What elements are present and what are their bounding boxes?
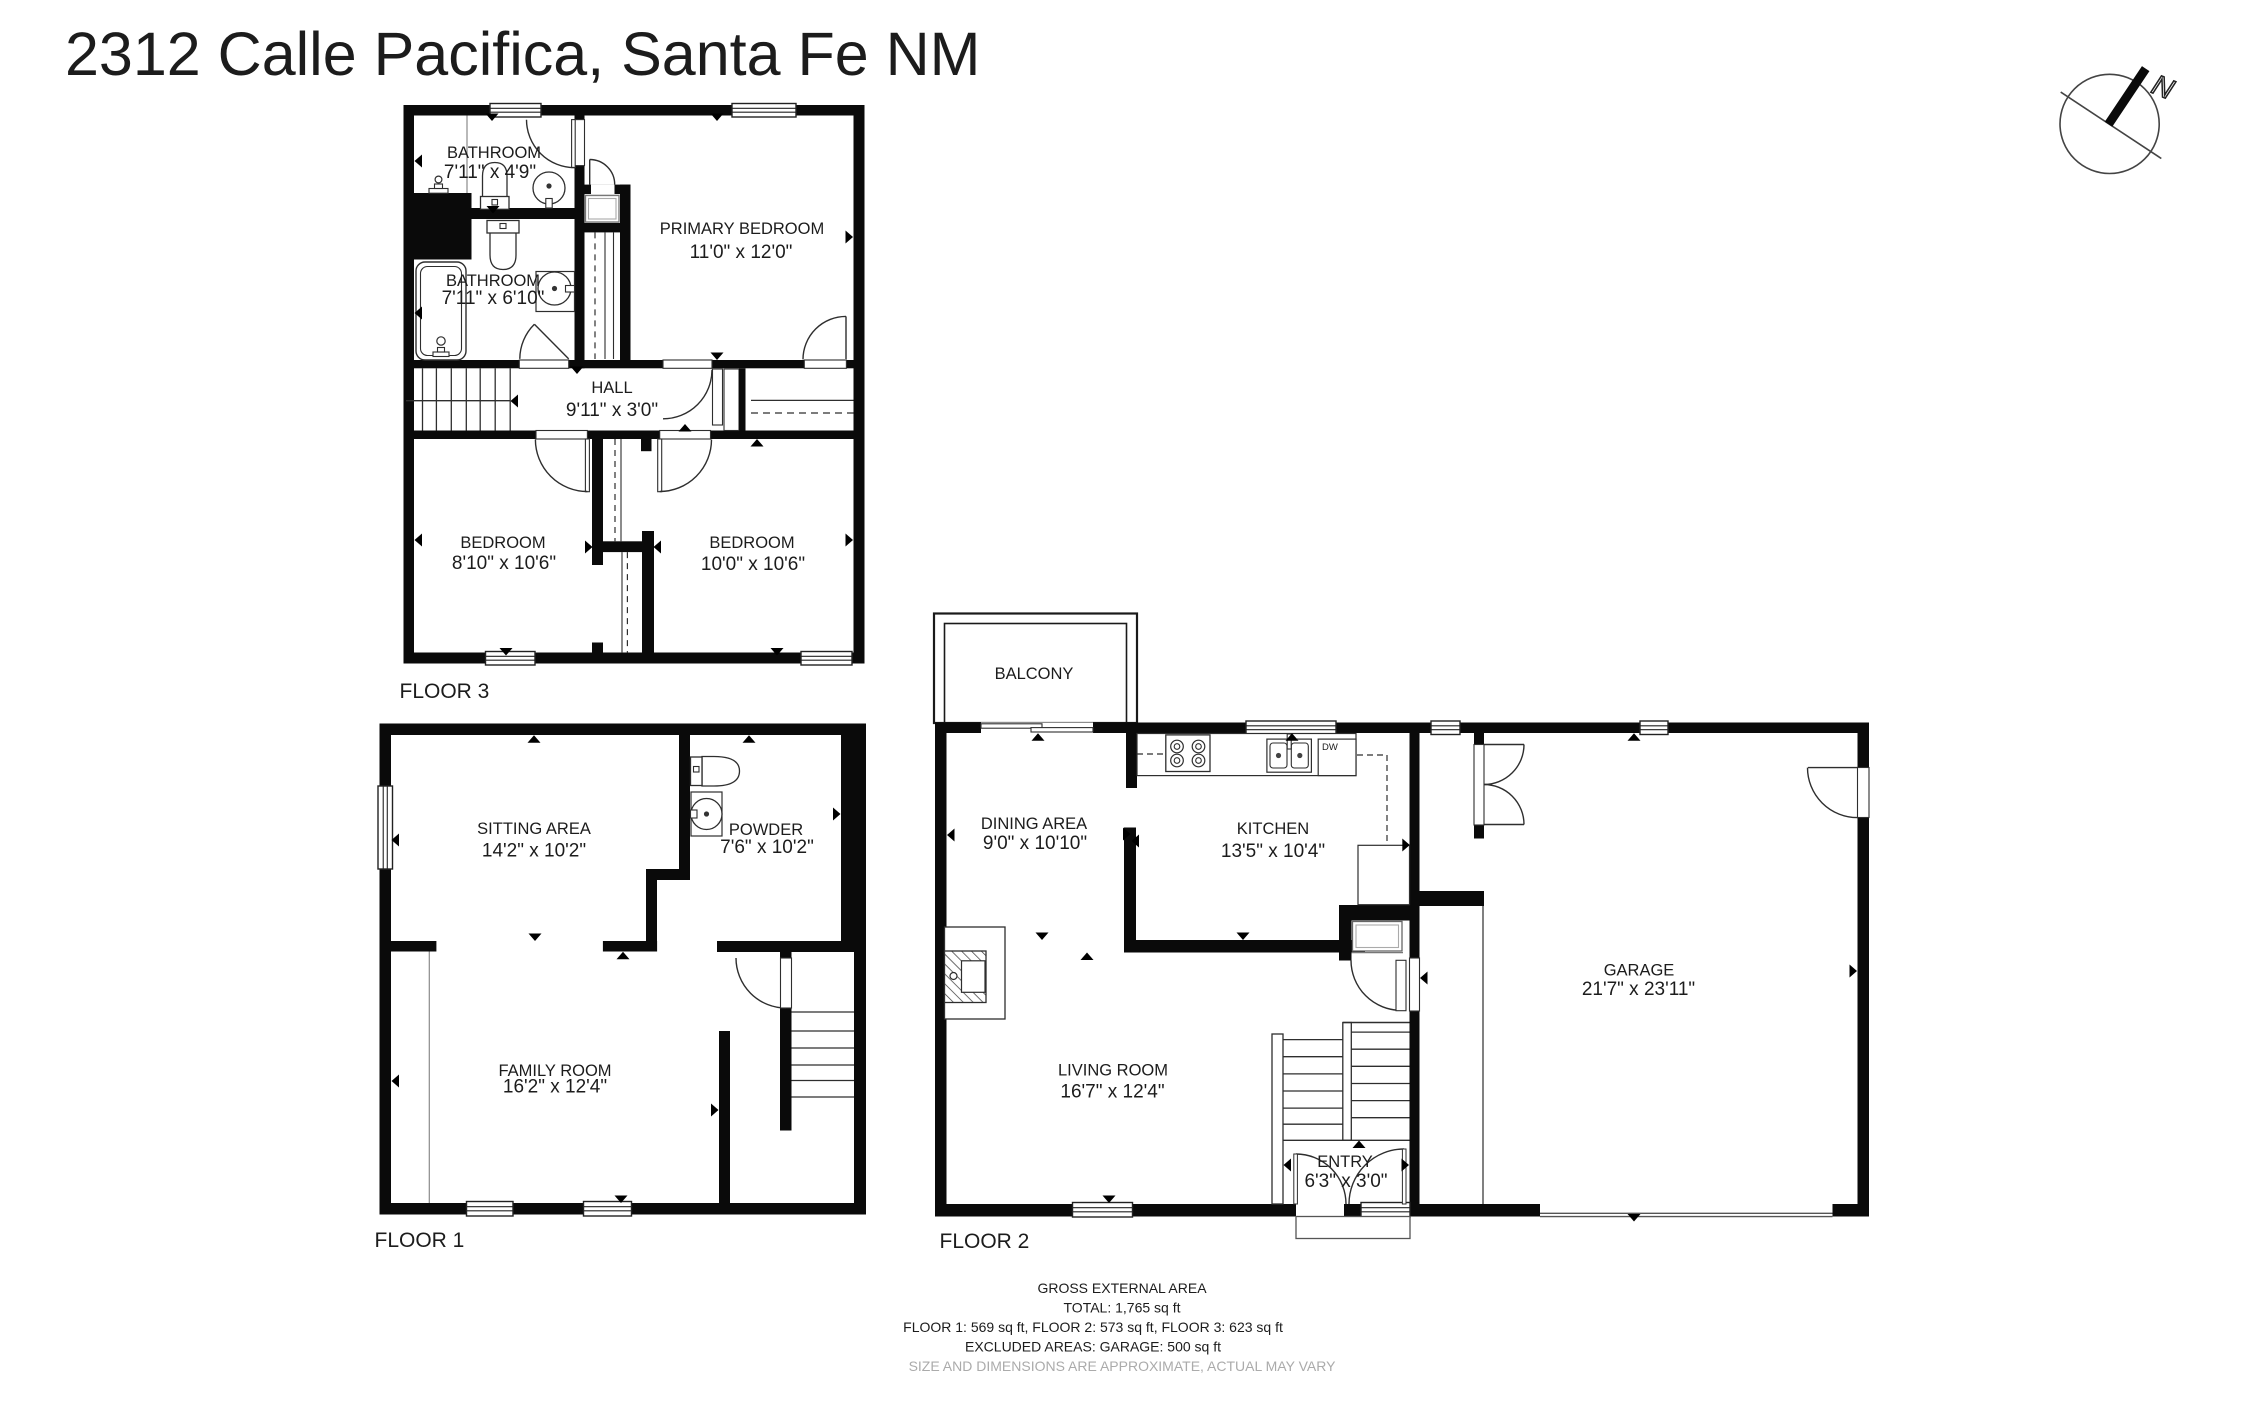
svg-text:16'7" x 12'4": 16'7" x 12'4" xyxy=(1060,1082,1164,1103)
svg-text:PRIMARY BEDROOM: PRIMARY BEDROOM xyxy=(660,220,824,238)
svg-text:SIZE AND DIMENSIONS ARE APPROX: SIZE AND DIMENSIONS ARE APPROXIMATE, ACT… xyxy=(909,1358,1337,1374)
svg-text:BEDROOM: BEDROOM xyxy=(709,534,794,552)
svg-text:GROSS EXTERNAL AREA: GROSS EXTERNAL AREA xyxy=(1037,1280,1207,1296)
svg-text:SITTING AREA: SITTING AREA xyxy=(477,820,591,838)
svg-text:KITCHEN: KITCHEN xyxy=(1237,820,1309,838)
svg-text:8'10" x 10'6": 8'10" x 10'6" xyxy=(452,553,556,574)
svg-text:FLOOR 1: 569 sq ft, FLOOR 2: 5: FLOOR 1: 569 sq ft, FLOOR 2: 573 sq ft, … xyxy=(903,1319,1283,1335)
svg-text:7'6" x 10'2": 7'6" x 10'2" xyxy=(720,837,814,858)
svg-text:7'11" x 4'9": 7'11" x 4'9" xyxy=(444,162,536,183)
svg-text:16'2" x 12'4": 16'2" x 12'4" xyxy=(503,1077,607,1098)
svg-text:BALCONY: BALCONY xyxy=(995,665,1074,683)
svg-text:LIVING ROOM: LIVING ROOM xyxy=(1058,1062,1168,1080)
svg-text:10'0" x 10'6": 10'0" x 10'6" xyxy=(701,554,805,575)
svg-text:EXCLUDED AREAS: GARAGE: 500 sq: EXCLUDED AREAS: GARAGE: 500 sq ft xyxy=(965,1339,1221,1355)
svg-text:ENTRY: ENTRY xyxy=(1317,1153,1373,1171)
svg-text:DINING AREA: DINING AREA xyxy=(981,815,1087,833)
svg-text:GARAGE: GARAGE xyxy=(1604,962,1675,980)
svg-text:9'0" x 10'10": 9'0" x 10'10" xyxy=(983,833,1087,854)
svg-text:6'3" x 3'0": 6'3" x 3'0" xyxy=(1304,1171,1387,1192)
svg-text:13'5" x 10'4": 13'5" x 10'4" xyxy=(1221,841,1325,862)
svg-text:TOTAL: 1,765 sq ft: TOTAL: 1,765 sq ft xyxy=(1064,1300,1181,1316)
svg-text:21'7" x 23'11": 21'7" x 23'11" xyxy=(1582,979,1695,1000)
svg-text:BEDROOM: BEDROOM xyxy=(460,534,545,552)
svg-text:BATHROOM: BATHROOM xyxy=(447,144,541,162)
svg-text:FLOOR 2: FLOOR 2 xyxy=(940,1230,1030,1253)
svg-text:FLOOR 1: FLOOR 1 xyxy=(375,1229,465,1252)
svg-text:7'11" x 6'10": 7'11" x 6'10" xyxy=(442,288,545,309)
svg-text:14'2" x 10'2": 14'2" x 10'2" xyxy=(482,841,586,862)
svg-text:HALL: HALL xyxy=(591,379,632,397)
svg-text:11'0" x 12'0": 11'0" x 12'0" xyxy=(690,242,793,263)
svg-text:FLOOR 3: FLOOR 3 xyxy=(400,680,490,703)
svg-text:9'11" x 3'0": 9'11" x 3'0" xyxy=(566,400,658,421)
svg-text:2312 Calle Pacifica, Santa Fe: 2312 Calle Pacifica, Santa Fe NM xyxy=(65,20,980,88)
svg-text:DW: DW xyxy=(1322,742,1338,753)
